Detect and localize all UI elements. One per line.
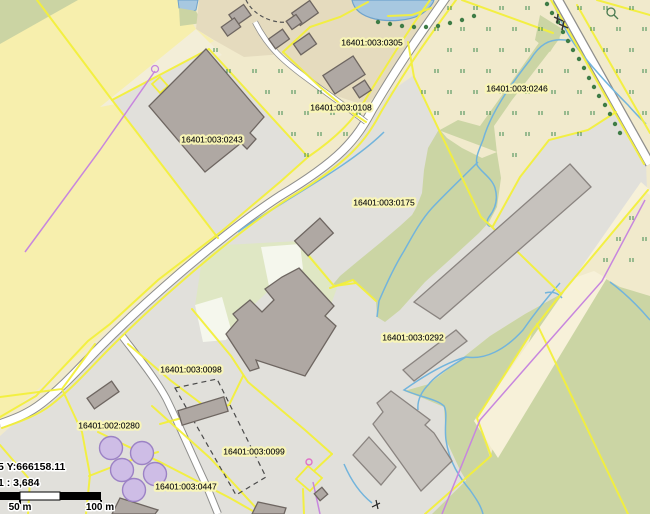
svg-text:16401:003:0292: 16401:003:0292: [382, 333, 444, 343]
svg-text:16401:003:0108: 16401:003:0108: [310, 103, 372, 113]
svg-text:50 m: 50 m: [9, 502, 32, 513]
svg-text:16401:003:0447: 16401:003:0447: [155, 482, 217, 492]
svg-text:16401:003:0099: 16401:003:0099: [223, 447, 285, 457]
svg-text:100 m: 100 m: [86, 502, 114, 513]
svg-text:16401:003:0175: 16401:003:0175: [353, 198, 415, 208]
svg-text:16401:003:0243: 16401:003:0243: [181, 135, 243, 145]
svg-text:16401:003:0246: 16401:003:0246: [486, 84, 548, 94]
svg-text:5 Y:666158.11: 5 Y:666158.11: [0, 461, 66, 473]
svg-text:1 : 3,684: 1 : 3,684: [0, 477, 40, 489]
svg-text:16401:003:0305: 16401:003:0305: [341, 38, 403, 48]
svg-text:16401:003:0098: 16401:003:0098: [160, 365, 222, 375]
svg-text:16401:002:0280: 16401:002:0280: [78, 421, 140, 431]
